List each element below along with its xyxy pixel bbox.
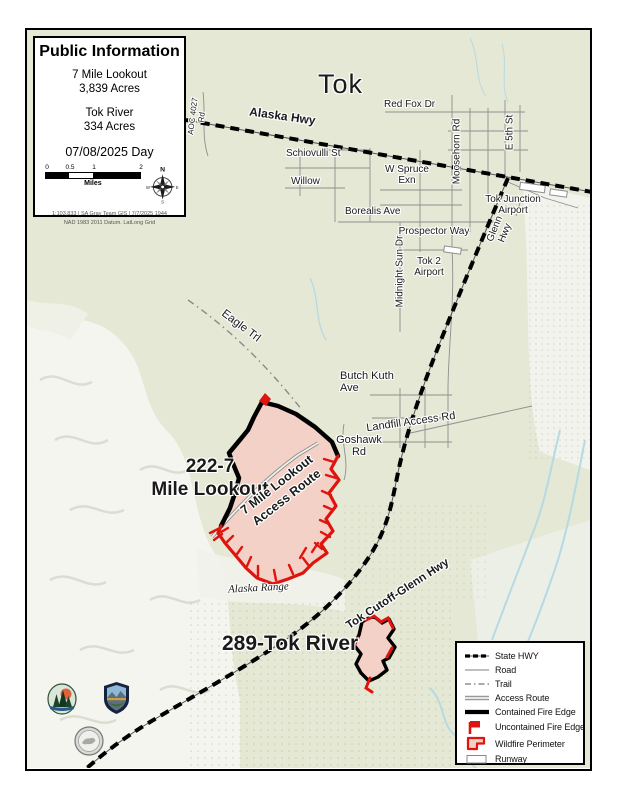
- round-seal-logo: [74, 726, 104, 756]
- label-tok-junction-airport: Tok Junction Airport: [474, 194, 552, 216]
- road-label-willow: Willow: [291, 176, 320, 187]
- svg-text:W: W: [146, 184, 151, 189]
- fire2-acres: 334 Acres: [35, 120, 184, 134]
- state-hwy-symbol-icon: [463, 650, 491, 662]
- uncontained-fire-edge-symbol-icon: [463, 719, 491, 735]
- scale-tick-05: 0.5: [65, 164, 74, 171]
- road-label-w-spruce-exn: W Spruce Exn: [378, 164, 436, 186]
- wildfire-perimeter-symbol-icon: [463, 735, 491, 752]
- legend-label: Uncontained Fire Edge: [495, 722, 585, 732]
- legend-item-access-route: Access Route: [463, 691, 579, 705]
- legend-item-road: Road: [463, 663, 579, 677]
- road-label-schiovulli-st: Schiovulli St: [286, 148, 340, 159]
- road-label-red-fox-dr: Red Fox Dr: [384, 99, 435, 110]
- legend-label: State HWY: [495, 651, 539, 661]
- scale-tick-0: 0: [45, 164, 49, 171]
- legend-label: Road: [495, 665, 516, 675]
- scale-tick-2: 2: [139, 164, 143, 171]
- legend-item-contained-fire-edge: Contained Fire Edge: [463, 705, 579, 719]
- legend-item-wildfire-perimeter: Wildfire Perimeter: [463, 735, 579, 752]
- legend-label: Access Route: [495, 693, 549, 703]
- fire1-acres: 3,839 Acres: [35, 82, 184, 96]
- forestry-logo: [47, 683, 77, 715]
- legend-item-uncontained-fire-edge: Uncontained Fire Edge: [463, 719, 579, 735]
- road-label-borealis-ave: Borealis Ave: [345, 206, 400, 217]
- fire2-name: Tok River: [35, 106, 184, 120]
- road-label-butch-kuth-ave: Butch Kuth Ave: [340, 370, 412, 394]
- road-symbol-icon: [463, 664, 491, 676]
- access-route-symbol-icon: [463, 692, 491, 704]
- compass-rose-icon: N E S W: [145, 164, 180, 204]
- page-title: Public Information: [35, 43, 184, 61]
- legend-item-state-hwy: State HWY: [463, 649, 579, 663]
- scale-tick-1: 1: [92, 164, 96, 171]
- scale-bar: 0 0.5 1 2 Miles: [45, 164, 141, 187]
- title-box: Public Information 7 Mile Lookout 3,839 …: [33, 36, 186, 217]
- legend-item-runway: Runway: [463, 752, 579, 766]
- svg-text:E: E: [176, 184, 179, 189]
- fire1-name: 7 Mile Lookout: [35, 68, 184, 82]
- public-information-fire-map: Tok Alaska Hwy Red Fox Dr Moosehorn Rd E…: [0, 0, 618, 799]
- road-label-prospector-way: Prospector Way: [398, 226, 470, 237]
- road-label-moosehorn-rd: Moosehorn Rd: [451, 119, 462, 185]
- legend-item-trail: Trail: [463, 677, 579, 691]
- map-date: 07/08/2025 Day: [35, 145, 184, 159]
- road-label-e-5th-st: E 5th St: [504, 115, 515, 151]
- legend-box: State HWY Road Trail Access Route C: [455, 641, 585, 765]
- road-label-midnight-sun-dr: Midnight Sun Dr: [394, 236, 405, 308]
- trail-symbol-icon: [463, 678, 491, 690]
- terrain-texture: [185, 600, 455, 768]
- svg-text:S: S: [161, 199, 164, 203]
- fire-label-289-tok-river: 289-Tok River: [222, 632, 358, 655]
- svg-text:N: N: [160, 166, 165, 173]
- runway-symbol-icon: [463, 753, 491, 765]
- scale-bar-graphic: [45, 172, 141, 179]
- legend-label: Trail: [495, 679, 512, 689]
- fire1-label-line1: 222-7: [128, 456, 292, 479]
- credit-line-2: NAD 1983 2011 Datum. LatLong Grid: [35, 219, 184, 229]
- road-label-goshawk-rd: Goshawk Rd: [330, 434, 388, 458]
- scale-unit: Miles: [45, 180, 141, 187]
- shield-badge-logo: [103, 681, 130, 715]
- label-tok-2-airport: Tok 2 Airport: [405, 256, 453, 278]
- town-label-tok: Tok: [318, 70, 363, 100]
- contained-fire-edge-symbol-icon: [463, 706, 491, 718]
- credit-line-1: 1:103,833 | SA Gray Team GIS | 7/7/2025 …: [35, 210, 184, 220]
- legend-label: Contained Fire Edge: [495, 707, 576, 717]
- legend-label: Wildfire Perimeter: [495, 739, 565, 749]
- legend-label: Runway: [495, 754, 527, 764]
